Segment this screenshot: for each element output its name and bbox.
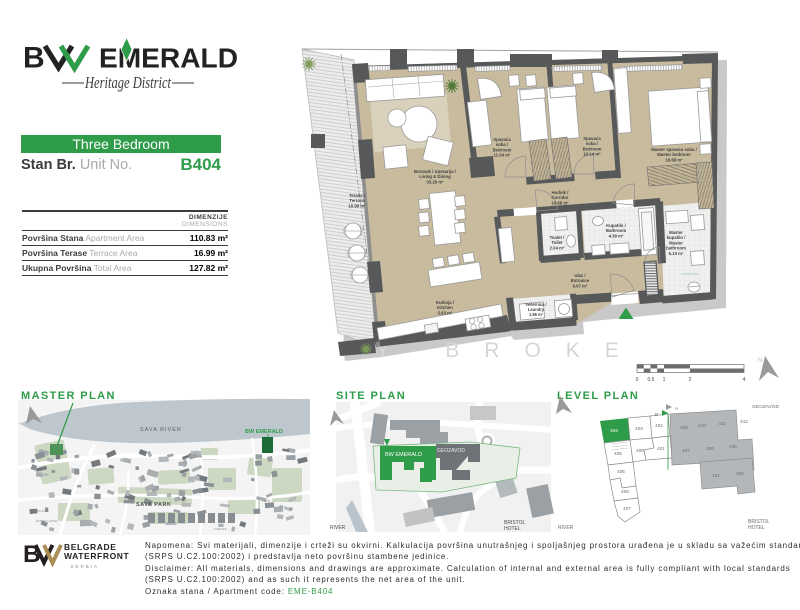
svg-text:4: 4 [743, 377, 746, 383]
svg-text:404: 404 [610, 428, 618, 433]
svg-text:RIVER: RIVER [330, 525, 346, 531]
svg-text:403: 403 [635, 426, 643, 431]
svg-text:HOTEL: HOTEL [748, 525, 765, 531]
svg-text:STEFAN MILE: STEFAN MILE [30, 509, 48, 513]
svg-text:RIVER: RIVER [558, 525, 574, 531]
svg-text:401: 401 [712, 473, 720, 478]
svg-text:RAMADA HOTEL: RAMADA HOTEL [36, 519, 58, 523]
svg-text:402: 402 [655, 423, 663, 428]
svg-text:406: 406 [706, 446, 714, 451]
svg-text:412: 412 [740, 419, 748, 424]
svg-text:HOTEL: HOTEL [504, 526, 521, 532]
svg-text:0.5: 0.5 [648, 377, 655, 383]
svg-text:PMFC: PMFC [262, 499, 270, 503]
svg-text:SAVA PARK: SAVA PARK [136, 502, 171, 508]
svg-text:2: 2 [689, 377, 692, 383]
svg-text:GEOZAVOD: GEOZAVOD [752, 404, 779, 410]
svg-text:B: B [655, 412, 658, 417]
svg-text:405: 405 [729, 444, 737, 449]
svg-text:Kuhinja /Kitchen5.63 m²: Kuhinja /Kitchen5.63 m² [436, 300, 455, 315]
svg-text:Terasa /Terrace16.99 m²: Terasa /Terrace16.99 m² [348, 193, 366, 208]
svg-text:BW EMERALD: BW EMERALD [245, 429, 283, 435]
svg-text:SAVA RIVER: SAVA RIVER [140, 427, 182, 433]
svg-text:407: 407 [682, 448, 690, 453]
svg-text:GEOZAVOD: GEOZAVOD [437, 448, 465, 454]
svg-text:Heritage District: Heritage District [84, 73, 172, 92]
svg-text:EMERALD: EMERALD [99, 43, 238, 74]
svg-text:406: 406 [617, 469, 625, 474]
svg-text:405: 405 [614, 451, 622, 456]
svg-text:411: 411 [718, 421, 726, 426]
svg-text:N: N [758, 358, 762, 364]
svg-text:A: A [675, 406, 678, 411]
svg-text:409: 409 [680, 425, 688, 430]
svg-text:Spavaćasoba /Bedroom10.14 m²: Spavaćasoba /Bedroom10.14 m² [583, 136, 602, 157]
svg-text:407: 407 [623, 506, 631, 511]
svg-text:410: 410 [698, 423, 706, 428]
svg-text:0: 0 [636, 377, 639, 383]
svg-text:400: 400 [636, 448, 644, 453]
svg-text:401: 401 [657, 446, 665, 451]
svg-text:a bathroom: a bathroom [681, 272, 699, 276]
svg-text:BW EMERALD: BW EMERALD [385, 452, 422, 458]
svg-text:B: B [23, 42, 45, 75]
svg-text:Hodnik /Corridor10.68 m²: Hodnik /Corridor10.68 m² [551, 190, 569, 205]
svg-text:408: 408 [621, 489, 629, 494]
svg-text:1: 1 [663, 377, 666, 383]
svg-text:Spavaćasoba /Bedroom11.04 m²: Spavaćasoba /Bedroom11.04 m² [493, 137, 512, 158]
svg-text:KVANTAS: KVANTAS [214, 527, 227, 531]
svg-text:400: 400 [736, 471, 744, 476]
